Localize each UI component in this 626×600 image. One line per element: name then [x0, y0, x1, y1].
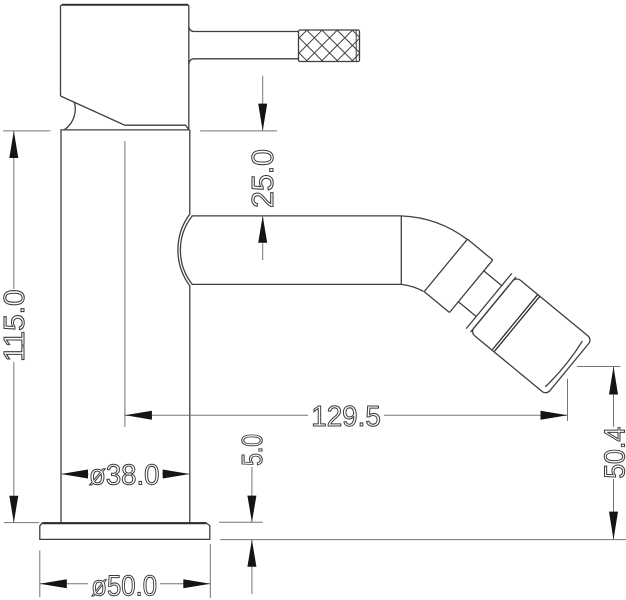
- svg-text:ø50.0: ø50.0: [91, 571, 157, 600]
- svg-text:5.0: 5.0: [237, 434, 269, 466]
- svg-text:129.5: 129.5: [311, 401, 381, 433]
- svg-text:25.0: 25.0: [245, 149, 280, 208]
- svg-text:ø38.0: ø38.0: [89, 460, 160, 492]
- svg-text:115.0: 115.0: [0, 289, 31, 362]
- svg-text:50.4: 50.4: [600, 427, 626, 479]
